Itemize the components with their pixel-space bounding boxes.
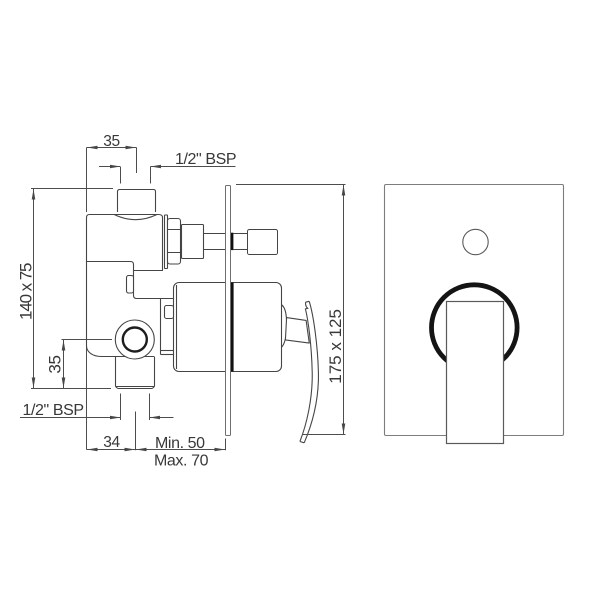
svg-text:175 x 125: 175 x 125: [326, 309, 345, 384]
svg-text:1/2" BSP: 1/2" BSP: [175, 151, 236, 168]
svg-text:140 x 75: 140 x 75: [16, 263, 35, 320]
svg-text:34: 34: [103, 434, 120, 451]
svg-text:35: 35: [46, 355, 65, 373]
svg-text:35: 35: [103, 133, 119, 150]
svg-text:Max. 70: Max. 70: [154, 453, 209, 470]
svg-text:1/2" BSP: 1/2" BSP: [23, 402, 84, 419]
svg-text:Min. 50: Min. 50: [155, 435, 205, 452]
